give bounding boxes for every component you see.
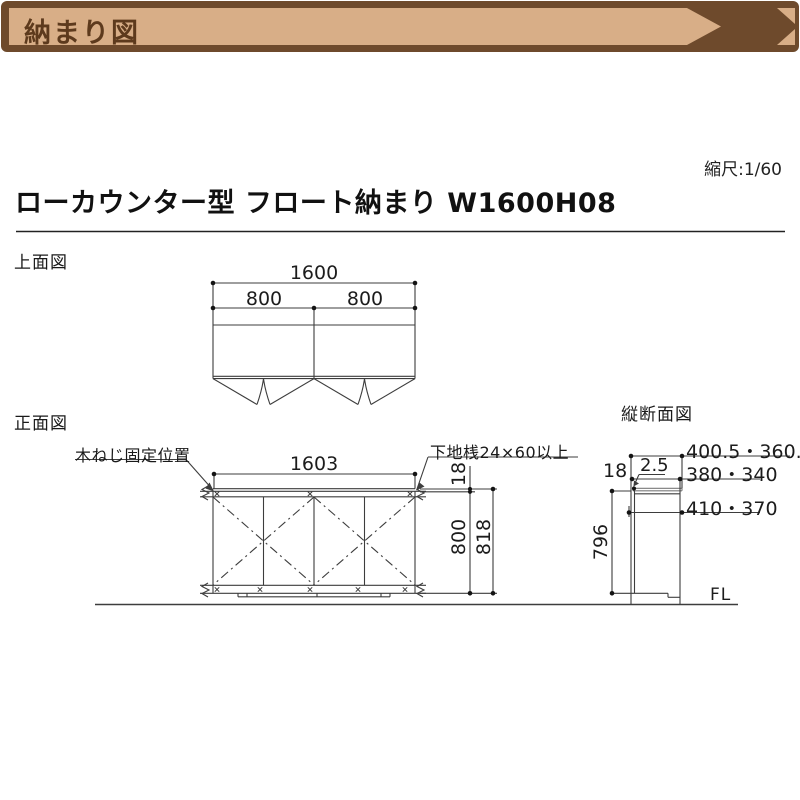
section-view-label: 縦断面図 (621, 400, 693, 425)
dim-section-top-thickness: 18 (603, 460, 627, 482)
dim-section-front-gap: 2.5 (640, 455, 669, 476)
dim-top-total-width: 1600 (274, 262, 354, 284)
page: 納まり図 縮尺:1/60 ローカウンター型 フロート納まり W1600H08 (0, 0, 800, 800)
top-view-label: 上面図 (14, 248, 68, 273)
front-view-label: 正面図 (14, 409, 68, 434)
dim-section-height: 796 (590, 524, 612, 560)
dim-top-left-half: 800 (224, 288, 304, 310)
dim-front-body-height: 800 (448, 519, 470, 555)
callout-screw-position: 木ねじ固定位置 (75, 442, 191, 466)
dim-top-right-half: 800 (325, 288, 405, 310)
dim-front-width: 1603 (274, 453, 354, 475)
floor-level-label: FL (710, 585, 731, 605)
dim-section-depth-bottom: 410・370 (686, 494, 778, 521)
leader-arrowheads (206, 481, 640, 492)
dim-section-depth-mid: 380・340 (686, 460, 778, 487)
callout-base-rail: 下地桟24×60以上 (430, 439, 569, 463)
dim-front-total-height: 818 (473, 519, 495, 555)
dim-front-top-thickness: 18 (448, 462, 470, 486)
